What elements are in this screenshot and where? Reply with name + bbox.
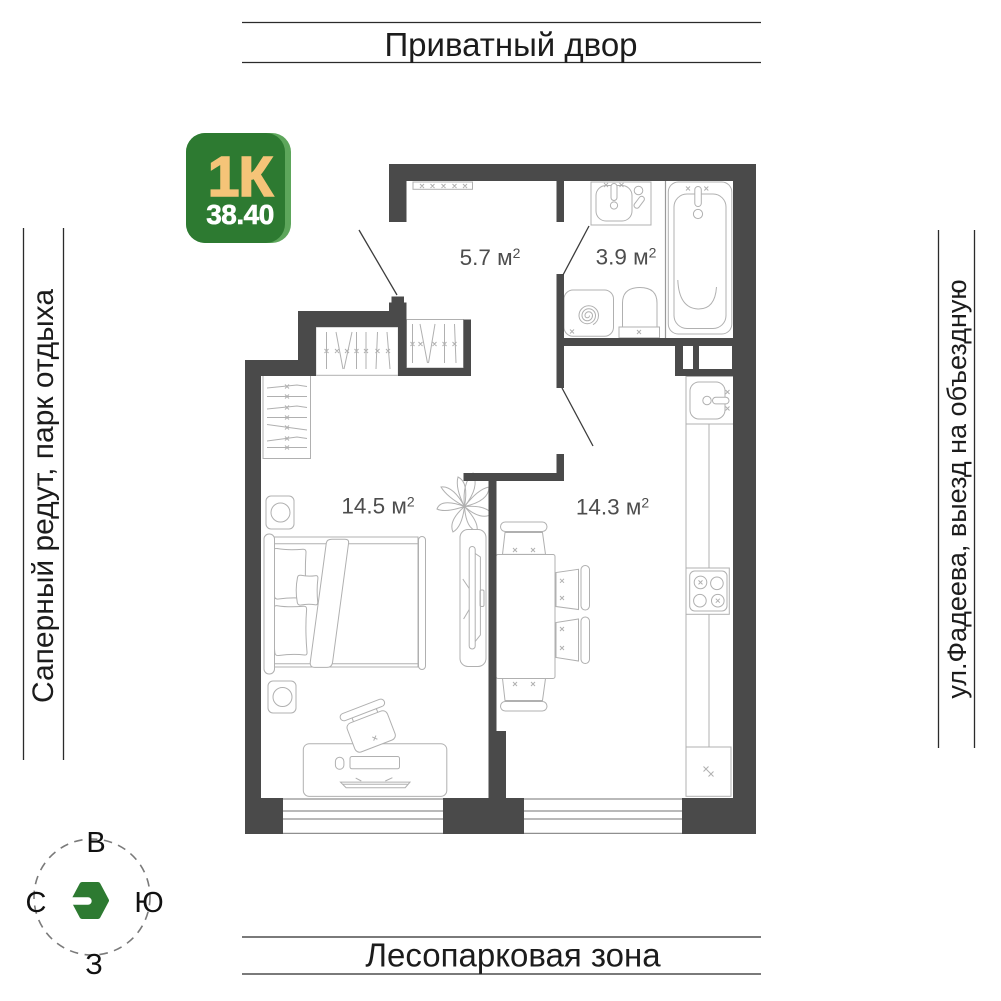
svg-text:Ю: Ю bbox=[134, 887, 163, 919]
svg-text:14.5 м2: 14.5 м2 bbox=[341, 494, 415, 519]
svg-text:С: С bbox=[26, 887, 47, 919]
svg-text:38.40: 38.40 bbox=[206, 199, 274, 230]
svg-text:В: В bbox=[86, 827, 105, 859]
svg-text:З: З bbox=[85, 949, 103, 981]
svg-text:3.9 м2: 3.9 м2 bbox=[596, 245, 657, 270]
svg-text:Саперный редут, парк отдыха: Саперный редут, парк отдыха bbox=[27, 289, 60, 703]
svg-text:14.3 м2: 14.3 м2 bbox=[576, 495, 650, 520]
svg-text:Лесопарковая зона: Лесопарковая зона bbox=[365, 937, 661, 974]
svg-text:Приватный двор: Приватный двор bbox=[384, 26, 637, 63]
svg-text:5.7 м2: 5.7 м2 bbox=[460, 245, 521, 270]
svg-text:ул.Фадеева, выезд на объездную: ул.Фадеева, выезд на объездную bbox=[942, 279, 972, 698]
